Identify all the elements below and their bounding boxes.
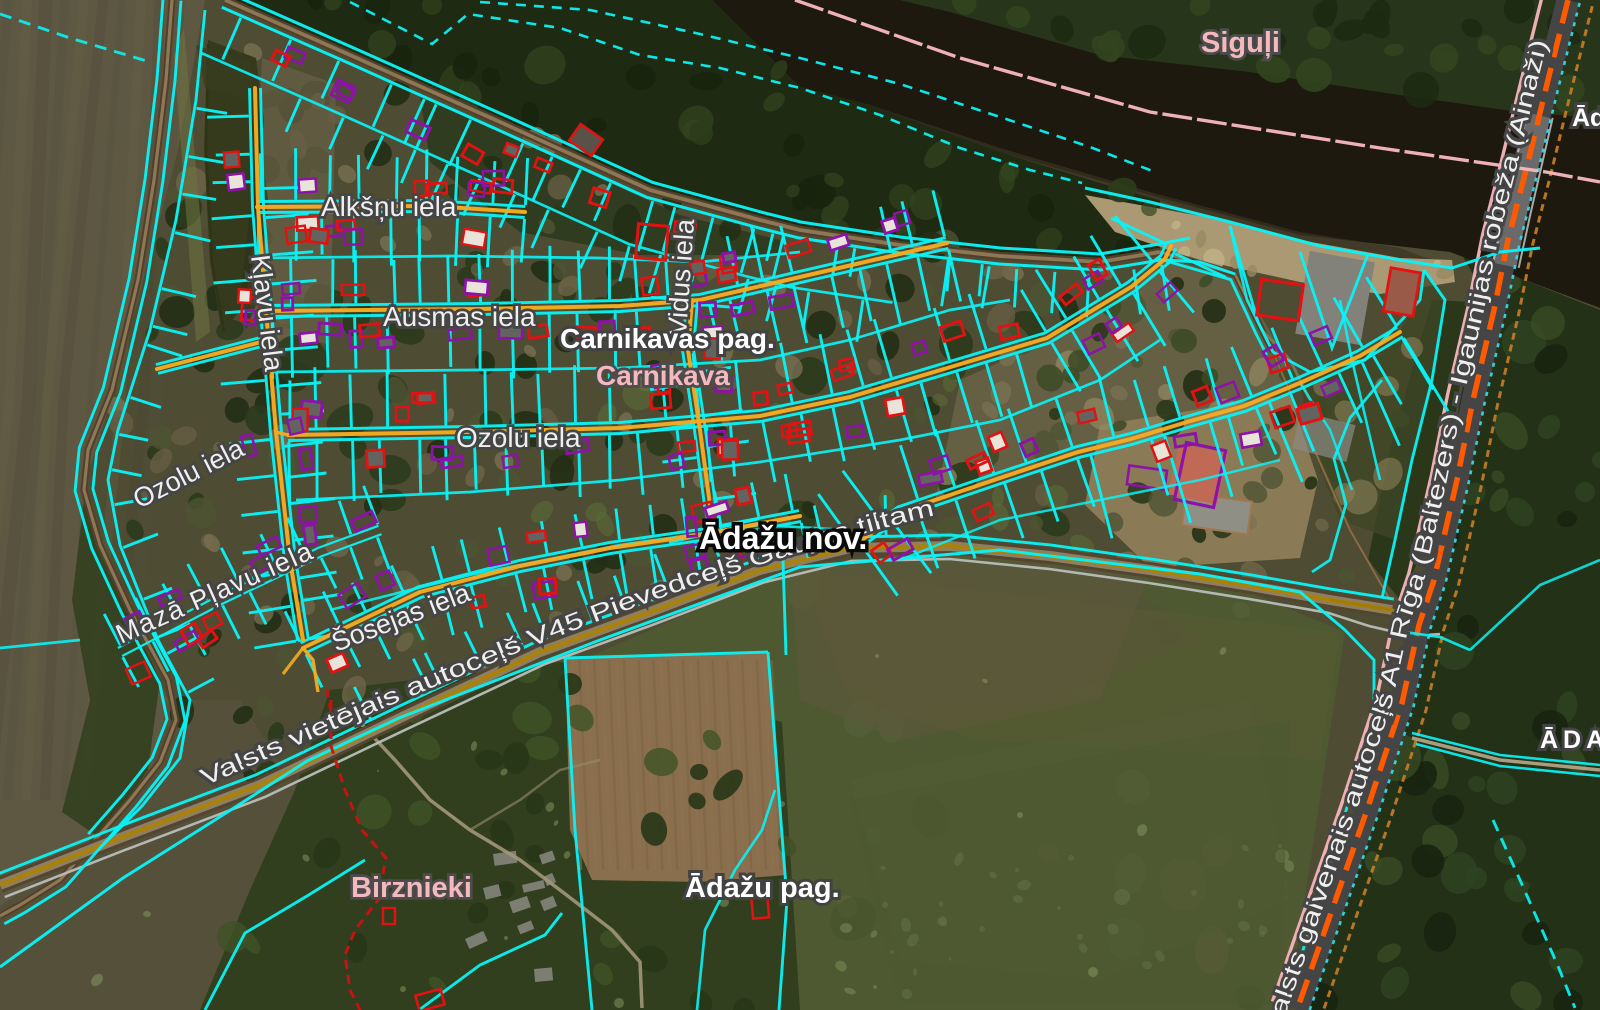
svg-text:Alkšņu iela: Alkšņu iela <box>321 191 457 222</box>
svg-text:Birznieki: Birznieki <box>351 872 472 904</box>
svg-text:Siguļi: Siguļi <box>1201 27 1280 59</box>
svg-text:Ādažu pag.: Ādažu pag. <box>685 872 840 904</box>
svg-text:Āda: Āda <box>1572 104 1600 132</box>
svg-text:Ausmas iela: Ausmas iela <box>383 301 536 332</box>
svg-text:Ozolu iela: Ozolu iela <box>456 422 581 453</box>
svg-text:ĀDAŽ: ĀDAŽ <box>1540 724 1600 754</box>
svg-text:Carnikavas pag.: Carnikavas pag. <box>560 323 775 354</box>
svg-text:Carnikava: Carnikava <box>596 360 730 391</box>
svg-text:Ādažu nov.: Ādažu nov. <box>699 520 867 556</box>
